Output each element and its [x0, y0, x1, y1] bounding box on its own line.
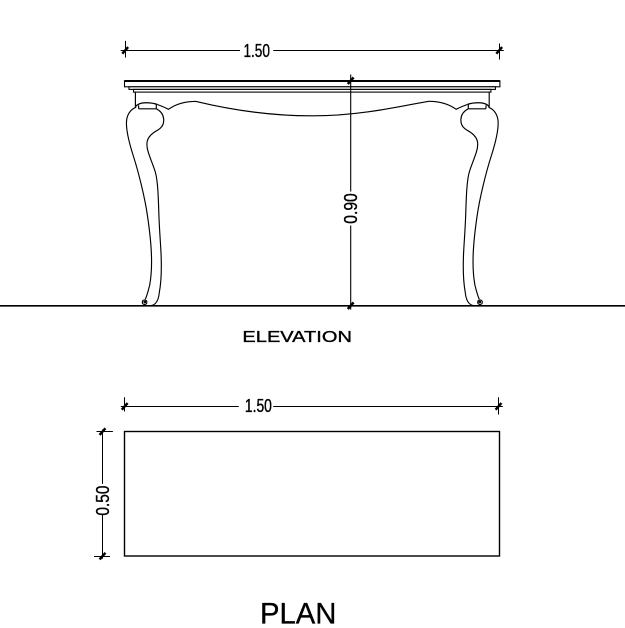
svg-text:1.50: 1.50 — [245, 396, 272, 416]
svg-text:PLAN: PLAN — [260, 597, 337, 628]
svg-text:ELEVATION: ELEVATION — [242, 329, 352, 346]
svg-text:1.50: 1.50 — [243, 41, 270, 61]
svg-text:0.50: 0.50 — [93, 486, 113, 516]
svg-text:0.90: 0.90 — [341, 193, 361, 224]
